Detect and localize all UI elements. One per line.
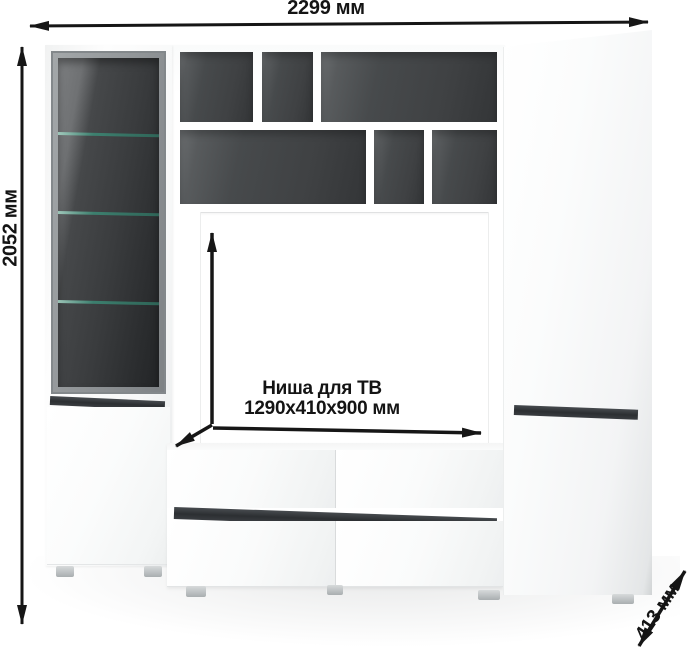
cabinet-lower-door [47,407,170,565]
niche-label: Ниша для ТВ 1290x410x900 мм [222,379,422,419]
tall-cabinet-handle-strip [514,405,638,420]
display-cabinet [45,45,172,566]
cabinet-foot [56,566,74,577]
niche-title-line: Ниша для ТВ [222,379,422,399]
glass-shelf [58,211,159,216]
niche-width-arrow [213,428,481,433]
furniture-dimension-diagram: 2299 мм 2052 мм Ниша для ТВ 1290x410x900… [0,0,700,653]
glass-door-frame [51,51,166,394]
glass-door [58,58,159,387]
shelf-compartment [180,52,253,122]
width-dimension-label: 2299 мм [226,0,426,20]
wall-shelf-unit [172,45,505,213]
niche-size-line: 1290x410x900 мм [222,399,422,419]
shelf-compartment [180,130,366,204]
height-dimension-label: 2052 мм [0,189,23,267]
shelf-compartment [432,130,497,204]
tv-stand [167,443,503,587]
shelf-compartment [374,130,424,204]
glass-shelf [58,132,159,137]
tv-stand-foot [478,590,500,600]
tv-stand-foot [327,585,343,595]
width-dimension-arrow [30,22,648,26]
tv-stand-foot [186,586,206,597]
drawer-front [167,521,336,586]
shelf-compartment [321,52,497,122]
tall-cabinet [503,30,652,595]
tall-cabinet-foot [612,594,634,604]
niche-side-panel-left [172,212,201,443]
glass-shelf [58,300,159,305]
drawer-front [167,450,336,508]
drawer-front [336,450,503,508]
shelf-compartment [262,52,313,122]
cabinet-foot [144,566,162,577]
drawer-front [336,521,503,586]
